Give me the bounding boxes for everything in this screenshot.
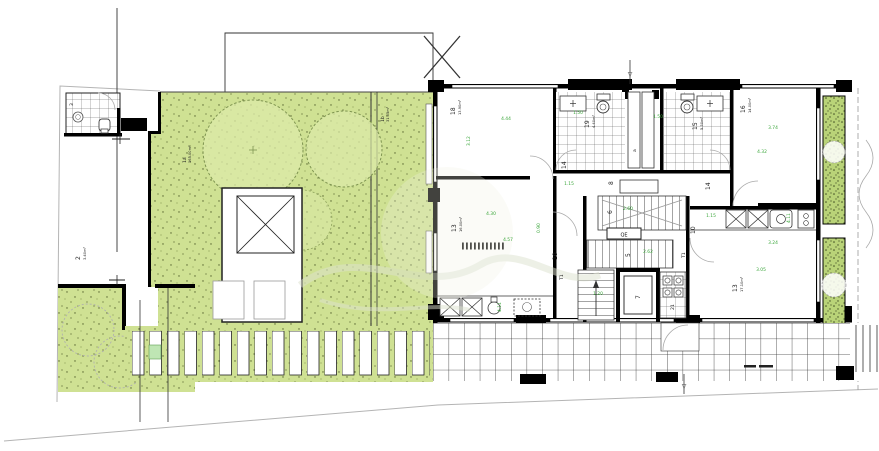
tree-crown-icon — [823, 141, 845, 163]
terrace-tiles — [433, 323, 876, 381]
dim-text: 1.20 — [593, 291, 603, 297]
wc-wall — [64, 133, 122, 137]
water-heater — [514, 299, 540, 316]
window — [817, 240, 820, 302]
dim-text: 4.11 — [786, 213, 792, 223]
room-label-7: 7 — [635, 295, 642, 299]
door-swing-arc — [733, 181, 758, 206]
wall-pier — [516, 315, 546, 324]
wall — [660, 88, 664, 172]
room-label-13-right: 13 17.10m² — [732, 276, 744, 292]
toilet-icon — [597, 101, 609, 113]
dim-text: 1.50 — [653, 114, 663, 120]
terrace-pier — [520, 374, 546, 384]
tap-icon — [491, 297, 497, 302]
window — [742, 85, 834, 88]
dim-text: 2.60 — [623, 206, 633, 212]
room-label-5: 5 — [625, 253, 632, 257]
note-text-mark — [759, 365, 773, 368]
kitchen-right — [690, 210, 816, 230]
toilet-tank — [597, 94, 610, 100]
wall — [686, 196, 690, 322]
wc-wall — [117, 108, 121, 135]
duct-shaft — [628, 92, 640, 168]
stair-landing — [620, 180, 658, 193]
dim-text: 3.12 — [466, 136, 472, 146]
door-swing-arc — [690, 238, 714, 262]
dim-text: 1.15 — [706, 213, 716, 219]
unit-label-t1-right: T1 — [681, 252, 687, 259]
dim-text: 4.11 — [497, 302, 503, 312]
room-label-21: 21 — [670, 304, 676, 310]
floor-plan-canvas: ▽ ▽ 18 13.90m² 19 4.40m² 15 5.30m² 16 14… — [0, 0, 879, 451]
dim-text: 4.44 — [501, 116, 511, 122]
room-area: 3.40m² — [83, 246, 87, 260]
neighbor-steps-area — [850, 323, 878, 381]
garden-wall — [158, 92, 161, 133]
room-label-18: 18 13.90m² — [450, 99, 462, 115]
dim-text: 3.24 — [768, 240, 778, 246]
elevator-wall — [616, 268, 660, 272]
dim-text: 4.32 — [757, 149, 767, 155]
plant-outline — [859, 140, 873, 248]
room-number: 15 — [692, 122, 699, 130]
room-area: 5.30m² — [700, 116, 704, 130]
room-area: 165.00m² — [188, 145, 192, 163]
door-swing-arc — [530, 156, 553, 179]
room-number: 13 — [451, 224, 458, 232]
appliance-icon — [674, 288, 683, 297]
room-area: 14.00m² — [748, 97, 752, 113]
dim-text: 0.90 — [536, 223, 542, 233]
terrace-pier — [836, 366, 854, 380]
room-label-14-right: 14 — [705, 182, 712, 190]
laundry-room — [660, 272, 686, 318]
sliding-door — [702, 319, 814, 322]
dim-text: 1.15 — [564, 181, 574, 187]
room-label-14-left: 14 — [561, 161, 568, 169]
room-label-10-left: 10 — [552, 252, 559, 260]
wall-pier — [836, 80, 852, 92]
room-area: 4.40m² — [592, 114, 596, 128]
toilet-tank — [681, 94, 694, 100]
dim-text: 4.57 — [503, 237, 513, 243]
tree-crown-icon — [822, 273, 846, 297]
level-marker-icon: ▽ — [682, 383, 687, 390]
toilet-tank — [101, 129, 108, 133]
wall — [553, 176, 557, 318]
wall — [690, 206, 820, 210]
duct-shaft — [642, 92, 654, 168]
dim-text: 3.05 — [756, 267, 766, 273]
wall — [730, 88, 734, 206]
side-yard-label-2: 2 3.40m² — [75, 246, 87, 260]
threshold-block — [121, 118, 147, 131]
boundary-line-bottom — [4, 389, 878, 441]
terrace-pier — [656, 372, 678, 382]
highlight-stone — [149, 345, 161, 359]
sliding-door — [450, 319, 514, 322]
stepping-stones — [130, 329, 430, 379]
bathroom-left — [556, 92, 625, 170]
duct-shafts — [628, 92, 654, 168]
elevator-cab — [624, 276, 652, 314]
wc-room — [64, 93, 147, 144]
bathroom-right — [664, 92, 730, 170]
wall — [553, 170, 733, 174]
room-number: 16 — [740, 105, 747, 113]
room-number: 2 — [75, 256, 82, 260]
elevator-wall — [656, 268, 660, 322]
room-number: 18 — [450, 107, 457, 115]
wall-pier — [568, 79, 632, 90]
patio-structure — [213, 188, 302, 322]
plot-wall — [122, 284, 126, 330]
terrace — [433, 323, 878, 384]
room-area: 17.10m² — [740, 276, 744, 292]
wc-label-3: 3 — [69, 103, 75, 106]
window — [452, 85, 558, 88]
elevator-wall — [616, 268, 620, 322]
floor-plan-drawing: ▽ ▽ 18 13.90m² 19 4.40m² 15 5.30m² 16 14… — [0, 0, 879, 451]
plot-notch — [125, 287, 158, 330]
room-label-16: 16 14.00m² — [740, 97, 752, 113]
shaft-label-a: a — [633, 149, 638, 152]
room-area: 16.00m² — [459, 216, 463, 232]
door-swing-arc — [553, 212, 577, 236]
wall — [758, 203, 820, 207]
paving-slab — [213, 281, 244, 319]
plot-wall — [155, 284, 195, 288]
tree-crown-icon — [306, 111, 382, 187]
sink-icon — [73, 112, 83, 122]
appliance-icon — [674, 276, 683, 285]
dim-text: 2.62 — [643, 249, 653, 255]
dim-text: 4.30 — [486, 211, 496, 217]
level-marker-icon: ▽ — [628, 71, 633, 78]
wall — [553, 88, 557, 172]
dim-text: 1.50 — [573, 110, 583, 116]
window — [817, 108, 820, 180]
paving-slab — [254, 281, 285, 319]
room-area: 13.90m² — [458, 99, 462, 115]
room-label-6: 6 — [607, 210, 614, 214]
dim-text: 3.74 — [768, 125, 778, 131]
room-area: 31.05m² — [386, 106, 390, 122]
wall-pier — [428, 80, 444, 92]
room-number: 19 — [584, 120, 591, 128]
water-heater-dial — [523, 303, 532, 312]
room-number: 13 — [732, 284, 739, 292]
unit-label-t1-left: T1 — [559, 274, 565, 281]
toilet-icon — [681, 101, 693, 113]
appliance-icon — [663, 288, 672, 297]
room-label-10-right: 10 — [690, 226, 697, 234]
appliance-icon — [663, 276, 672, 285]
electrical-panel-label: QE — [620, 233, 627, 239]
room-label-8: 8 — [608, 181, 615, 185]
plot-wall — [58, 284, 125, 288]
note-text-mark — [744, 365, 756, 368]
